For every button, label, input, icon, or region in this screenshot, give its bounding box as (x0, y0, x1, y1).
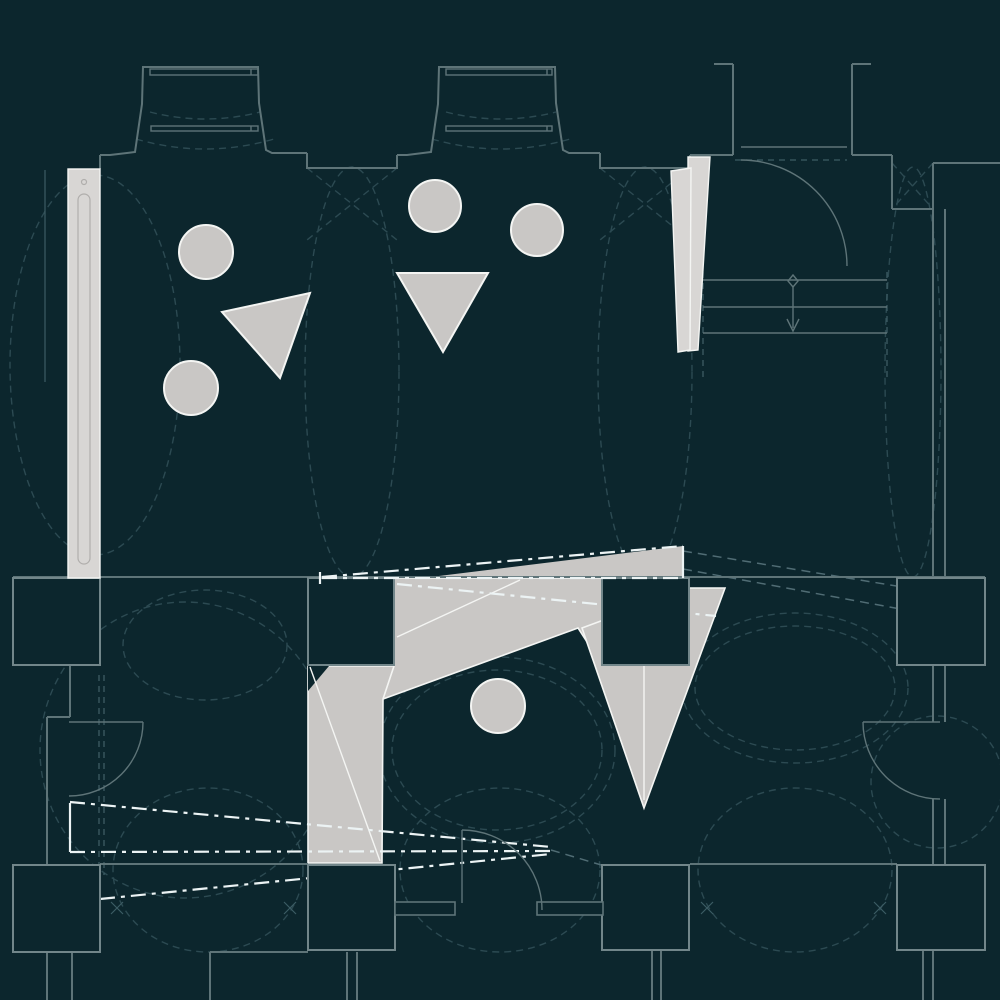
bay2-window-lower (446, 126, 552, 131)
person-circle-4 (511, 204, 563, 256)
pier-mid-left (308, 578, 394, 665)
x-mark-2 (284, 902, 296, 914)
glazing-bar (68, 169, 100, 578)
notch1-outline (307, 153, 397, 168)
bay2-dashed-arc-lower (432, 139, 570, 149)
pier-right-bottom (897, 865, 985, 950)
bay1-dashed-arc-upper (150, 112, 260, 119)
pier-right-top (897, 578, 985, 665)
triangle-glyph-mid (397, 273, 488, 352)
dashed-ellipse-room-bottom-left (113, 788, 303, 952)
bay1-window-lower (151, 126, 258, 131)
person-circle-5 (471, 679, 525, 733)
notch2-outline (600, 153, 690, 168)
door-top-arc (741, 160, 847, 266)
recess-wall-right (537, 902, 603, 915)
dashed-ellipse-notch-1 (305, 167, 399, 577)
bay2-outline (397, 67, 600, 155)
pivot-door-leaf-back (671, 168, 691, 352)
view-fan-fill (398, 546, 683, 581)
pier-left-top (13, 578, 100, 665)
door-left-arc (69, 722, 143, 796)
bay2-window-upper (446, 69, 552, 75)
x-mark-6 (874, 902, 886, 914)
door-bottom-arc (462, 830, 542, 910)
sightline-lower-2 (70, 851, 553, 852)
floor-plan-canvas (0, 0, 1000, 1000)
dashed-ellipse-room-bottom-mid (400, 788, 600, 952)
bay2-dashed-arc-upper (446, 112, 556, 119)
pier-left-bottom (13, 865, 100, 952)
person-circle-1 (179, 225, 233, 279)
person-circle-3 (409, 180, 461, 232)
dashed-ellipse-room-right-outer (682, 613, 908, 763)
sightline-ext-1 (683, 551, 933, 592)
bay1-window-upper (150, 69, 258, 75)
triangle-glyph-left (222, 293, 310, 378)
pier-bottom-left (308, 865, 395, 950)
pier-bottom-mid (602, 865, 689, 950)
recess-wall-left (395, 902, 455, 915)
dashed-ellipse-room-right-inner (695, 626, 895, 750)
pier-mid-right (602, 578, 689, 665)
dashed-circle-door-right (871, 716, 1000, 848)
dashed-ellipse-room-bottom-right (698, 788, 892, 952)
person-circle-2 (164, 361, 218, 415)
x-mark-1 (111, 902, 123, 914)
bay1-dashed-arc-lower (136, 139, 274, 149)
bay1-outline (100, 67, 307, 155)
stair-arrow-diamond (788, 275, 798, 287)
floor-plan (0, 0, 1000, 1000)
